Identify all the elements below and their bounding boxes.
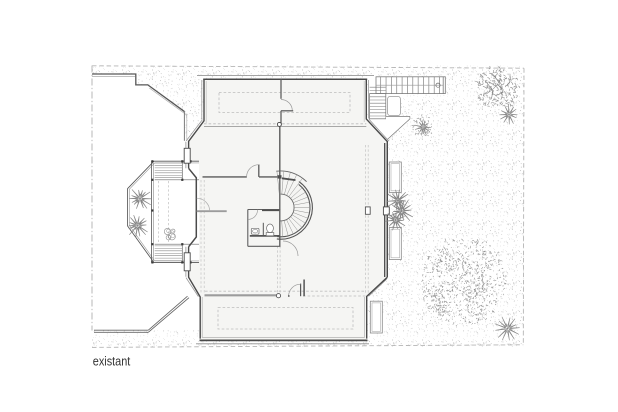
svg-text:existant: existant — [93, 355, 131, 369]
